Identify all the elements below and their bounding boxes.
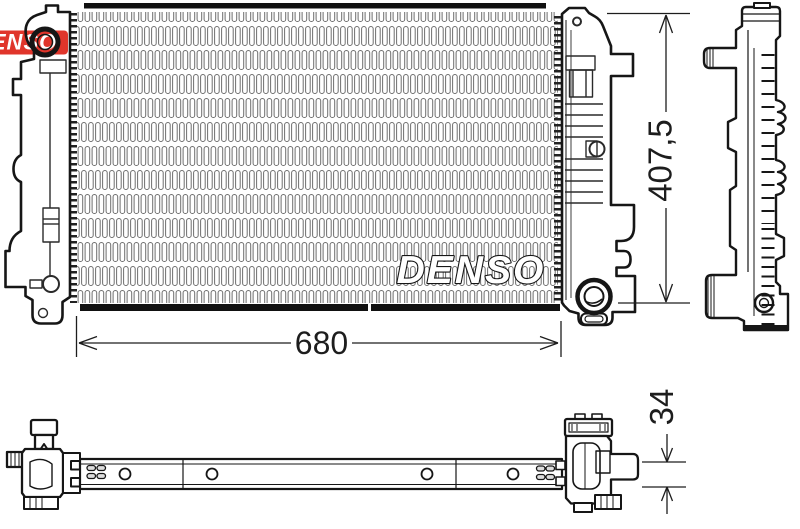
radiator-technical-drawing: DENSO xyxy=(0,0,800,529)
side-top-notch xyxy=(754,3,770,8)
brand-watermark: DENSO xyxy=(397,249,546,292)
dimension-thickness xyxy=(642,434,686,514)
right-tank-details xyxy=(565,18,605,301)
dimension-width-value: 680 xyxy=(295,325,348,361)
core-top-band xyxy=(84,3,546,9)
radiator-technical-drawing-page: DENSO xyxy=(0,0,800,529)
bottom-left-fitting xyxy=(7,420,80,509)
core-bottom-band-joint xyxy=(368,304,371,311)
left-tank-details xyxy=(30,60,66,318)
side-view xyxy=(704,3,788,330)
dimension-height-value: 407,5 xyxy=(642,119,679,202)
core-bottom-band xyxy=(80,304,560,311)
bottom-view xyxy=(7,414,638,512)
side-view-outline xyxy=(704,7,788,330)
dimension-thickness-value: 34 xyxy=(643,389,680,426)
outlet-port xyxy=(578,280,611,325)
side-pipe-ribs xyxy=(707,49,714,317)
front-view: DENSO xyxy=(0,3,635,325)
side-bottom-port-inner xyxy=(760,299,769,308)
bottom-right-fitting xyxy=(556,414,638,512)
side-bottom-port xyxy=(755,294,773,312)
